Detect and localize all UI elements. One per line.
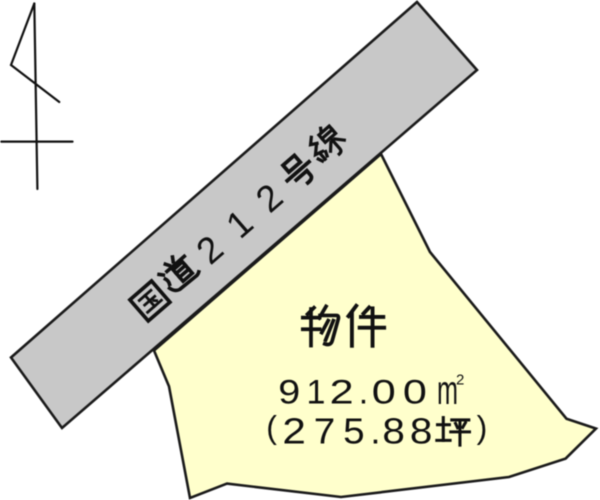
svg-text:0: 0 bbox=[403, 374, 427, 412]
svg-text:9: 9 bbox=[278, 374, 300, 412]
svg-text:2: 2 bbox=[456, 372, 464, 389]
svg-text:7: 7 bbox=[314, 410, 336, 451]
svg-text:.: . bbox=[359, 374, 368, 412]
svg-text:2: 2 bbox=[330, 374, 354, 412]
svg-text:8: 8 bbox=[382, 410, 405, 451]
svg-text:0: 0 bbox=[372, 374, 396, 412]
svg-text:2: 2 bbox=[282, 410, 306, 451]
svg-text:.: . bbox=[370, 410, 380, 451]
svg-text:): ) bbox=[477, 410, 488, 446]
svg-text:5: 5 bbox=[343, 410, 365, 451]
svg-text:1: 1 bbox=[306, 374, 325, 412]
svg-text:(: ( bbox=[266, 410, 277, 446]
svg-text:8: 8 bbox=[410, 410, 433, 451]
svg-text:m: m bbox=[437, 367, 458, 413]
